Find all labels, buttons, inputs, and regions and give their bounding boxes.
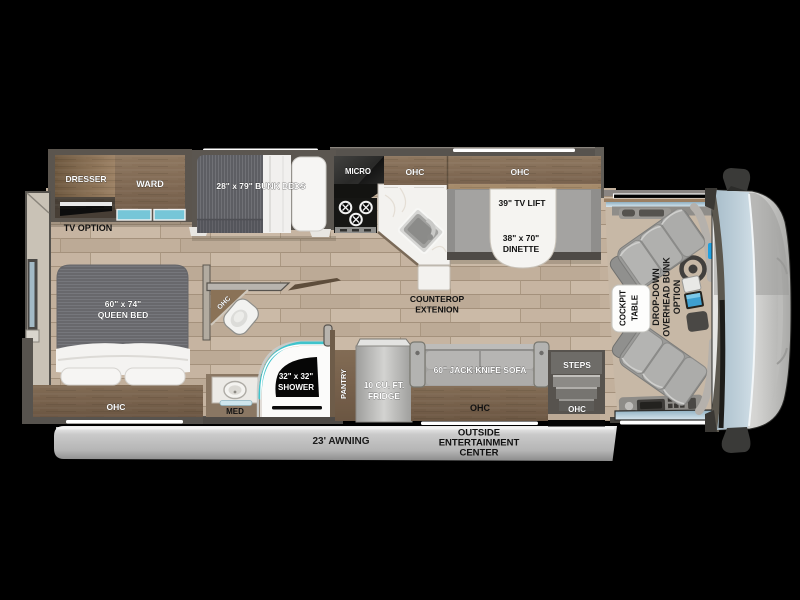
svg-text:OHC: OHC: [470, 403, 491, 413]
svg-text:EXTENION: EXTENION: [415, 305, 458, 315]
svg-text:CENTER: CENTER: [459, 448, 498, 459]
svg-text:DINETTE: DINETTE: [503, 244, 540, 254]
svg-text:28" x 79" BUNK BEDS: 28" x 79" BUNK BEDS: [216, 181, 306, 191]
svg-text:23' AWNING: 23' AWNING: [312, 436, 369, 447]
svg-text:COUNTEROP: COUNTEROP: [410, 294, 465, 304]
svg-text:OHC: OHC: [107, 402, 126, 412]
svg-text:MICRO: MICRO: [345, 167, 371, 176]
svg-text:38" x 70": 38" x 70": [503, 233, 539, 243]
svg-text:OVERHEAD BUNK: OVERHEAD BUNK: [662, 257, 672, 337]
svg-text:60" x 74": 60" x 74": [105, 299, 141, 309]
svg-text:PANTRY: PANTRY: [339, 369, 348, 399]
svg-text:TV OPTION: TV OPTION: [64, 223, 113, 233]
svg-text:QUEEN BED: QUEEN BED: [98, 310, 149, 320]
svg-text:60" JACK-KNIFE SOFA: 60" JACK-KNIFE SOFA: [434, 365, 527, 375]
svg-text:39" TV LIFT: 39" TV LIFT: [498, 198, 546, 208]
svg-text:TABLE: TABLE: [631, 294, 640, 321]
svg-text:FRIDGE: FRIDGE: [368, 391, 400, 401]
svg-text:OHC: OHC: [568, 405, 586, 414]
svg-text:10 CU. FT.: 10 CU. FT.: [364, 380, 405, 390]
svg-text:COCKPIT: COCKPIT: [619, 290, 628, 326]
svg-text:MED: MED: [226, 407, 244, 416]
svg-text:DROP-DOWN: DROP-DOWN: [651, 268, 661, 326]
svg-text:OPTION: OPTION: [672, 280, 682, 315]
svg-text:STEPS: STEPS: [563, 360, 591, 370]
svg-text:SHOWER: SHOWER: [278, 383, 314, 392]
svg-text:32" x 32": 32" x 32": [279, 372, 313, 381]
